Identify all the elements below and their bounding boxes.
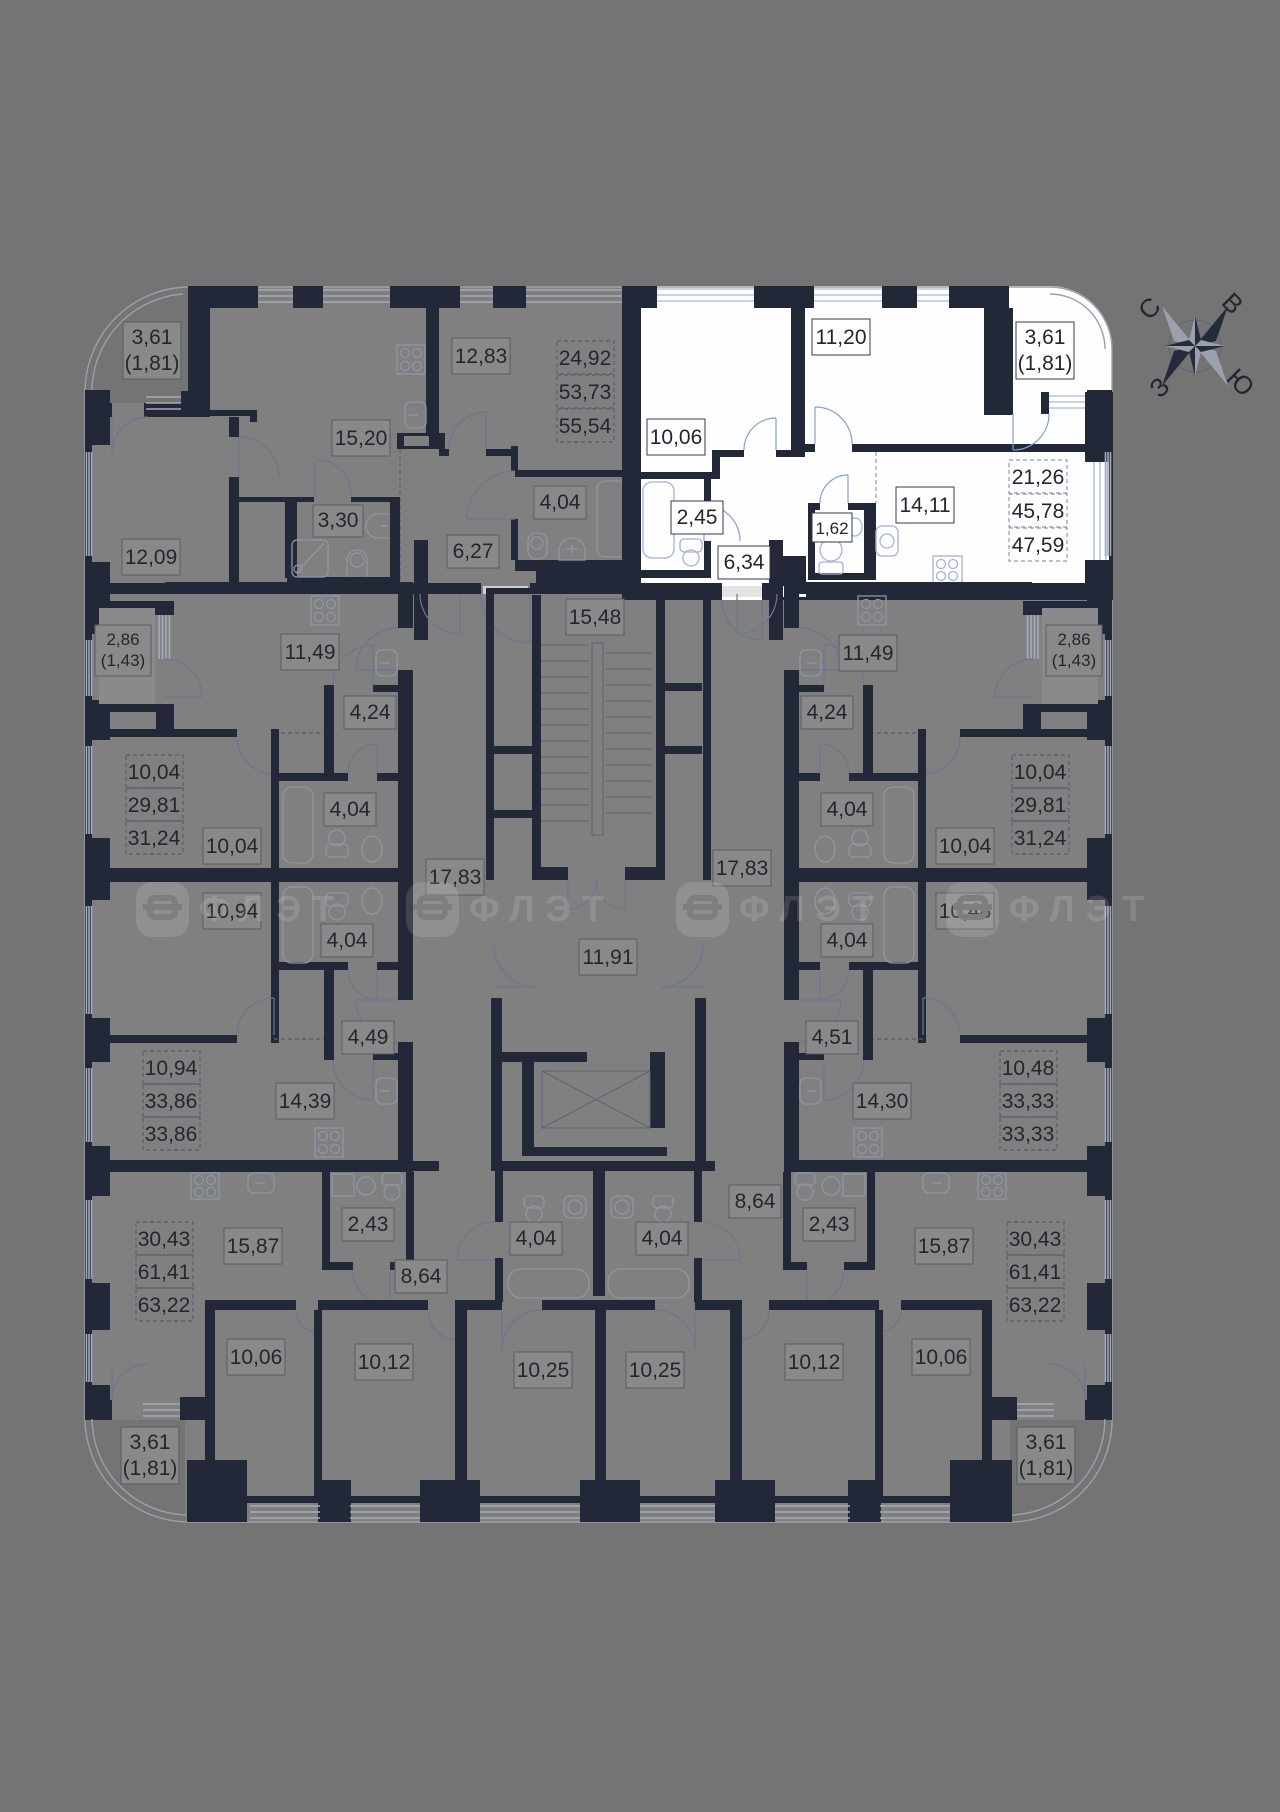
svg-text:(1,43): (1,43) (101, 651, 145, 670)
svg-text:3,61: 3,61 (1026, 1431, 1067, 1454)
svg-text:10,06: 10,06 (230, 1346, 283, 1369)
svg-text:3,61: 3,61 (1025, 326, 1066, 349)
svg-text:4,24: 4,24 (807, 701, 848, 724)
svg-text:61,41: 61,41 (138, 1261, 191, 1284)
svg-text:14,30: 14,30 (856, 1090, 909, 1113)
svg-text:30,43: 30,43 (138, 1228, 191, 1251)
svg-text:10,04: 10,04 (128, 761, 181, 784)
svg-text:10,25: 10,25 (517, 1359, 570, 1382)
svg-text:6,27: 6,27 (453, 540, 494, 563)
svg-text:10,94: 10,94 (145, 1057, 198, 1080)
svg-text:17,83: 17,83 (716, 857, 769, 880)
svg-text:15,87: 15,87 (227, 1235, 280, 1258)
svg-text:4,04: 4,04 (327, 929, 368, 952)
svg-text:33,33: 33,33 (1002, 1090, 1055, 1113)
svg-text:61,41: 61,41 (1009, 1261, 1062, 1284)
svg-text:53,73: 53,73 (559, 381, 612, 404)
svg-text:4,24: 4,24 (350, 701, 391, 724)
svg-text:63,22: 63,22 (1009, 1294, 1062, 1317)
svg-text:З: З (1143, 371, 1175, 403)
svg-text:10,12: 10,12 (788, 1351, 841, 1374)
svg-text:4,04: 4,04 (827, 798, 868, 821)
svg-text:30,43: 30,43 (1009, 1228, 1062, 1251)
svg-text:31,24: 31,24 (128, 827, 181, 850)
svg-text:(1,81): (1,81) (123, 1457, 178, 1480)
svg-text:33,33: 33,33 (1002, 1123, 1055, 1146)
svg-text:10,25: 10,25 (629, 1359, 682, 1382)
svg-text:14,39: 14,39 (279, 1090, 332, 1113)
svg-text:ФЛЭТ: ФЛЭТ (199, 888, 345, 929)
svg-text:10,04: 10,04 (939, 835, 992, 858)
svg-text:21,26: 21,26 (1012, 466, 1065, 489)
svg-text:(1,81): (1,81) (1018, 352, 1073, 375)
svg-text:10,48: 10,48 (1002, 1057, 1055, 1080)
svg-text:11,49: 11,49 (843, 642, 894, 665)
svg-text:31,24: 31,24 (1014, 827, 1067, 850)
svg-text:(1,81): (1,81) (1019, 1457, 1074, 1480)
svg-text:С: С (1132, 291, 1166, 325)
svg-text:15,20: 15,20 (335, 427, 388, 450)
svg-text:(1,43): (1,43) (1052, 651, 1096, 670)
svg-text:2,43: 2,43 (809, 1213, 850, 1236)
svg-text:11,49: 11,49 (285, 641, 336, 664)
svg-text:4,04: 4,04 (516, 1227, 557, 1250)
svg-text:4,04: 4,04 (540, 491, 581, 514)
svg-text:24,92: 24,92 (559, 347, 612, 370)
svg-text:3,61: 3,61 (132, 326, 173, 349)
svg-text:ФЛЭТ: ФЛЭТ (469, 888, 615, 929)
svg-text:4,04: 4,04 (827, 929, 868, 952)
svg-text:ФЛЭТ: ФЛЭТ (739, 888, 885, 929)
svg-text:Ю: Ю (1221, 362, 1261, 402)
svg-text:55,54: 55,54 (559, 415, 612, 438)
svg-text:8,64: 8,64 (401, 1265, 442, 1288)
svg-text:10,04: 10,04 (206, 835, 259, 858)
svg-text:ФЛЭТ: ФЛЭТ (1009, 888, 1155, 929)
svg-text:4,04: 4,04 (642, 1227, 683, 1250)
svg-text:(1,81): (1,81) (125, 352, 180, 375)
svg-text:12,09: 12,09 (125, 546, 178, 569)
svg-text:1,62: 1,62 (815, 519, 848, 538)
svg-text:6,34: 6,34 (724, 551, 765, 574)
svg-text:2,43: 2,43 (348, 1213, 389, 1236)
svg-text:2,45: 2,45 (677, 506, 718, 529)
svg-text:3,30: 3,30 (318, 509, 359, 532)
svg-text:3,61: 3,61 (130, 1431, 171, 1454)
svg-text:11,91: 11,91 (583, 946, 634, 969)
svg-text:4,49: 4,49 (348, 1026, 389, 1049)
svg-text:10,04: 10,04 (1014, 761, 1067, 784)
svg-text:63,22: 63,22 (138, 1294, 191, 1317)
svg-text:45,78: 45,78 (1012, 500, 1065, 523)
svg-text:2,86: 2,86 (106, 630, 139, 649)
svg-text:8,64: 8,64 (735, 1190, 776, 1213)
svg-text:14,11: 14,11 (900, 494, 951, 517)
svg-text:11,20: 11,20 (816, 326, 867, 349)
svg-text:4,04: 4,04 (330, 798, 371, 821)
svg-text:10,12: 10,12 (358, 1351, 411, 1374)
svg-text:33,86: 33,86 (145, 1090, 198, 1113)
svg-text:10,06: 10,06 (650, 426, 703, 449)
svg-text:10,06: 10,06 (915, 1346, 968, 1369)
svg-text:15,87: 15,87 (918, 1235, 971, 1258)
svg-text:12,83: 12,83 (455, 345, 508, 368)
svg-text:4,51: 4,51 (812, 1026, 853, 1049)
svg-text:2,86: 2,86 (1057, 630, 1090, 649)
svg-text:29,81: 29,81 (1014, 794, 1067, 817)
svg-text:33,86: 33,86 (145, 1123, 198, 1146)
svg-text:15,48: 15,48 (569, 606, 622, 629)
svg-text:29,81: 29,81 (128, 794, 181, 817)
svg-text:47,59: 47,59 (1012, 534, 1065, 557)
